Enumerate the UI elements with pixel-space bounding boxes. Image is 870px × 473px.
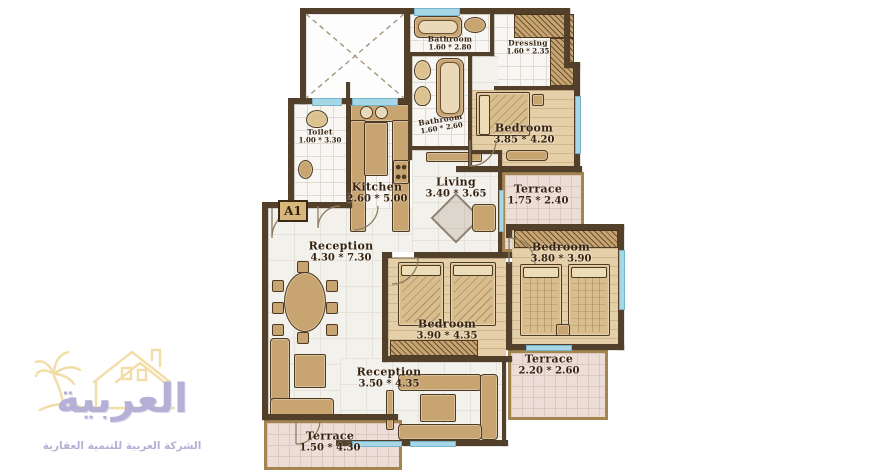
wall-segment (288, 98, 294, 208)
wall-segment (410, 52, 494, 56)
window-icon (410, 441, 456, 447)
coffee-table-icon (294, 354, 326, 388)
bathtub-basin (418, 20, 458, 34)
room-label-reception-lower: Reception 3.50 * 4.35 (357, 365, 422, 390)
window-icon (312, 98, 342, 106)
bidet-icon (414, 86, 431, 106)
bed-throw (454, 276, 492, 322)
kitchen-sink-icon-2 (375, 106, 388, 119)
bed-icon-twin-3 (398, 262, 444, 326)
wall-segment (262, 202, 268, 420)
bed-icon-twin-4 (450, 262, 496, 326)
room-label-bedroom-right: Bedroom 3.80 * 3.90 (531, 240, 592, 265)
chair-icon (326, 280, 338, 292)
bed-quilt (572, 278, 606, 332)
wc-icon (306, 110, 328, 128)
chair-icon (272, 302, 284, 314)
wall-segment (506, 262, 512, 350)
room-label-living: Living 3.40 * 3.65 (426, 175, 487, 200)
armchair-icon (472, 204, 496, 232)
wall-segment (506, 224, 624, 230)
chair-icon (272, 324, 284, 336)
unit-badge: A1 (278, 200, 308, 222)
room-label-bedroom-mid: Bedroom 3.90 * 4.35 (417, 317, 478, 342)
pillow-icon (523, 267, 559, 278)
wall-segment (456, 166, 582, 172)
sink-icon (464, 17, 486, 33)
dining-table-icon (284, 272, 326, 332)
wall-segment (262, 414, 398, 420)
pillow-icon (401, 265, 441, 276)
window-icon (414, 8, 460, 16)
sofa-icon-sectional-bottom (398, 424, 482, 440)
bed-quilt (524, 278, 558, 332)
sofa-icon-sectional-right (480, 374, 498, 440)
hall-floor (472, 56, 498, 90)
wall-segment (472, 150, 498, 154)
window-icon (575, 96, 581, 154)
wall-segment (300, 8, 410, 14)
tv-unit-icon (386, 390, 394, 430)
kitchen-sink-icon (360, 106, 373, 119)
wall-segment (412, 146, 472, 150)
kitchen-cabinet-island (364, 122, 388, 176)
chair-icon (297, 261, 309, 273)
bed-throw (402, 276, 440, 322)
room-label-dressing: Dressing 1.60 * 2.35 (507, 38, 550, 55)
wall-segment (494, 86, 578, 90)
bench-icon (506, 150, 548, 161)
room-label-terrace-top: Terrace 1.75 * 2.40 (508, 182, 569, 207)
room-label-terrace-bottom: Terrace 1.50 * 4.30 (300, 429, 361, 454)
window-icon (619, 250, 625, 310)
toilet-icon (414, 60, 431, 80)
logo-brand-text: العربية (28, 376, 216, 422)
wall-segment (382, 356, 512, 362)
room-label-bathroom-top: Bathroom 1.60 * 2.80 (428, 34, 472, 51)
coffee-table-icon-2 (420, 394, 456, 422)
nightstand-icon (532, 94, 544, 106)
pillow-icon (479, 95, 490, 135)
room-label-terrace-right: Terrace 2.20 * 2.60 (519, 352, 580, 377)
company-logo: العربية الشركة العربية للتنمية العقارية (28, 336, 216, 468)
chair-icon (272, 280, 284, 292)
wall-segment (564, 8, 570, 68)
room-label-reception-main: Reception 4.30 * 7.30 (309, 239, 374, 264)
wall-segment (414, 252, 512, 258)
wall-segment (490, 8, 494, 56)
pillow-icon (571, 267, 607, 278)
room-label-toilet: Toilet 1.00 * 3.30 (299, 127, 342, 144)
washbasin-icon (298, 160, 313, 179)
wall-segment (300, 8, 306, 104)
window-icon (526, 345, 572, 351)
chair-icon (297, 332, 309, 344)
pillow-icon (453, 265, 493, 276)
chair-icon (326, 302, 338, 314)
sofa-icon-vertical (270, 338, 290, 402)
shaft-floor (306, 14, 404, 98)
bed-icon-twin-2 (568, 264, 610, 336)
chair-icon (326, 324, 338, 336)
window-icon (499, 190, 504, 232)
floorplan-canvas: Bathroom 1.60 * 2.80 Dressing 1.60 * 2.3… (0, 0, 870, 473)
room-label-kitchen: Kitchen 2.60 * 5.00 (347, 180, 408, 205)
bathtub-basin-2 (440, 62, 460, 114)
wall-segment (502, 358, 506, 446)
nightstand-icon (556, 324, 570, 336)
logo-tagline-text: الشركة العربية للتنمية العقارية (28, 440, 216, 452)
bathtub-vertical-icon (436, 58, 464, 118)
wall-segment (382, 252, 388, 362)
room-label-bedroom-top: Bedroom 3.85 * 4.20 (494, 121, 555, 146)
wall-segment (408, 56, 412, 160)
window-icon (352, 98, 398, 106)
